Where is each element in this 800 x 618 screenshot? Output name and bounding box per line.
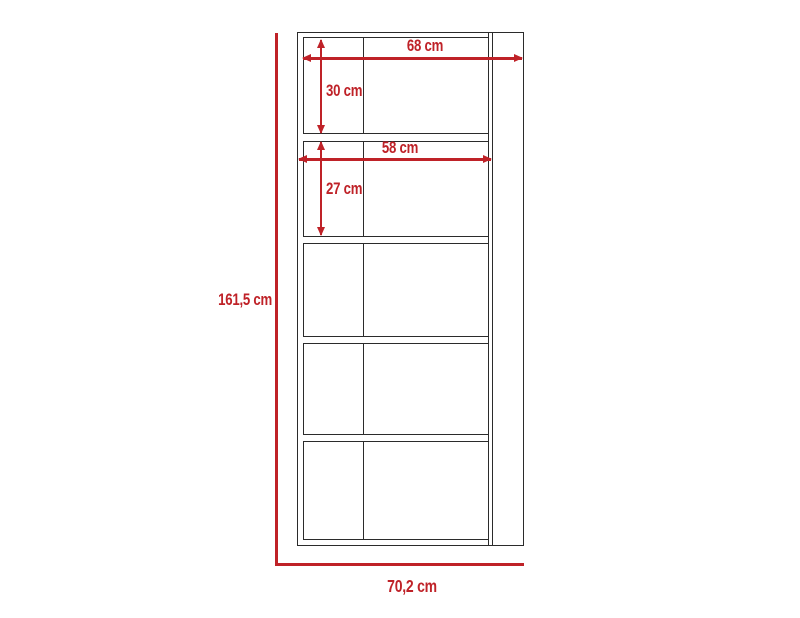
dimension-line-second-section-height: [320, 142, 323, 235]
dimension-label-overall-width: 70,2 cm: [364, 577, 460, 596]
arrowhead-down-icon: [317, 125, 325, 134]
cabinet-section-1-divider: [363, 38, 364, 133]
dimension-line-overall-width: [275, 563, 524, 566]
cabinet-section-4-divider: [363, 344, 364, 434]
arrowhead-down-icon: [317, 227, 325, 236]
dimension-label-second-section-height: 27 cm: [326, 180, 362, 199]
dimension-label-top-section-height: 30 cm: [326, 82, 362, 101]
dimension-label-second-section-width: 58 cm: [352, 139, 448, 158]
arrowhead-up-icon: [317, 141, 325, 150]
arrowhead-left-icon: [302, 54, 311, 62]
dimension-line-top-section-width: [303, 57, 522, 60]
dimension-line-top-section-height: [320, 40, 323, 133]
cabinet-section-4: [303, 343, 489, 435]
cabinet-section-3-divider: [363, 244, 364, 336]
dimension-diagram-canvas: 68 cm 30 cm 58 cm 27 cm 161,5 cm 70,2 cm: [0, 0, 800, 618]
cabinet-section-3: [303, 243, 489, 337]
arrowhead-up-icon: [317, 39, 325, 48]
cabinet-section-5: [303, 441, 489, 540]
dimension-label-overall-height: 161,5 cm: [206, 291, 272, 310]
dimension-line-overall-height: [275, 33, 278, 564]
dimension-label-top-section-width: 68 cm: [377, 37, 473, 56]
arrowhead-right-icon: [514, 54, 523, 62]
dimension-line-second-section-width: [299, 158, 491, 161]
arrowhead-right-icon: [483, 155, 492, 163]
arrowhead-left-icon: [298, 155, 307, 163]
cabinet-section-5-divider: [363, 442, 364, 539]
